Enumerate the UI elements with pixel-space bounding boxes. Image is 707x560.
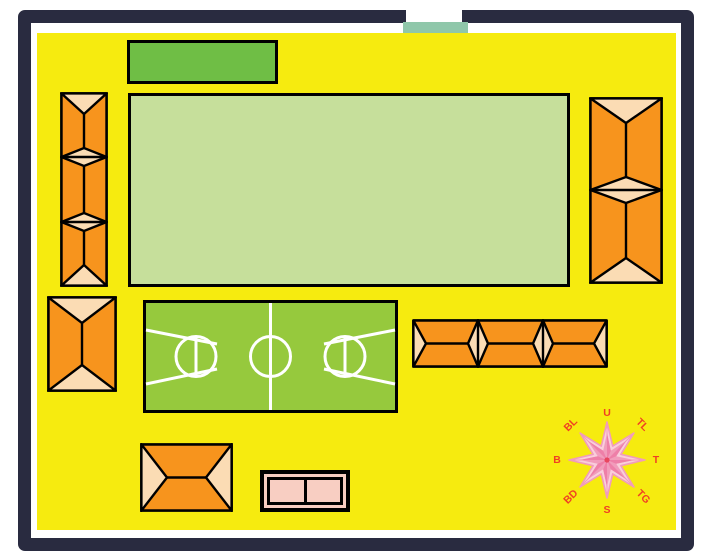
compass-label-north: U	[603, 407, 611, 419]
building-east-row	[412, 319, 608, 368]
basketball-court	[143, 300, 398, 413]
compass-label-southeast: TG	[634, 487, 653, 506]
compass-label-northwest: BL	[562, 415, 581, 434]
compass-label-west: B	[553, 454, 561, 466]
compass-star	[569, 422, 645, 498]
building-left-small	[47, 296, 117, 392]
building-left-row	[60, 92, 108, 287]
building-right-row	[589, 97, 663, 284]
annex-structure	[260, 470, 350, 512]
annex-rooms	[267, 477, 343, 505]
main-field	[128, 93, 570, 287]
compass-label-northeast: TL	[633, 416, 651, 434]
hall-building	[127, 40, 278, 84]
building-south	[140, 443, 233, 512]
school-grounds-map: U TL T TG S BD B BL	[0, 0, 707, 560]
compass-label-east: T	[653, 454, 660, 466]
compass-label-southwest: BD	[561, 487, 581, 507]
compass-rose: U TL T TG S BD B BL	[549, 399, 665, 523]
annex-room-divider	[304, 477, 307, 505]
compass-label-south: S	[603, 504, 610, 516]
compass-center-dot	[604, 457, 609, 462]
